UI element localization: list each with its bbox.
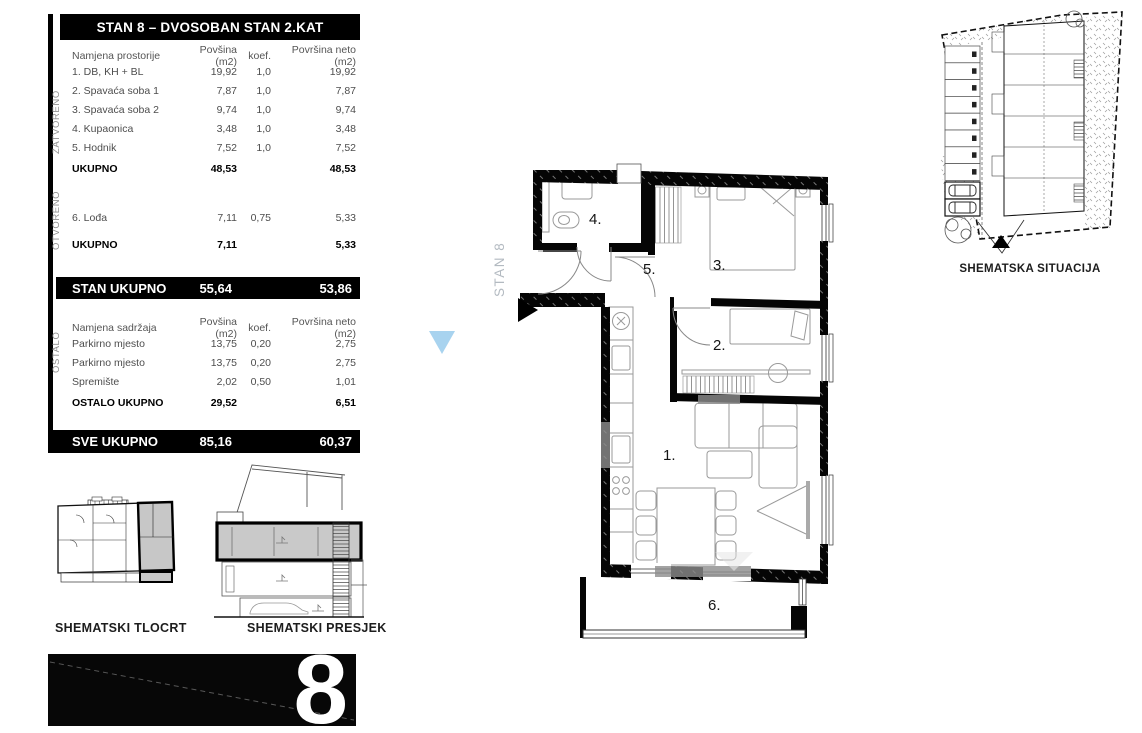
bedroom2-furniture <box>682 309 810 393</box>
pillow <box>717 187 745 200</box>
floor-plan: 4. 5. 3. 2. 1. 6. <box>505 160 850 660</box>
side-label-zatvoreno: ZATVORENO <box>51 75 62 170</box>
col-neto: Površina neto (m2) <box>271 44 356 68</box>
wardrobe <box>683 376 754 393</box>
wall-top-left <box>533 170 618 184</box>
parapet <box>217 512 243 523</box>
section-ostalo: Namjena sadržaja Povšina (m2) koef. Povr… <box>60 316 360 412</box>
blanket-fold <box>759 186 794 216</box>
wardrobe <box>655 187 681 243</box>
single-bed <box>730 309 810 344</box>
sofa-chaise <box>759 426 797 488</box>
loggia-wall-left <box>580 577 586 638</box>
toilet-bowl <box>559 216 570 225</box>
roof-lines <box>234 465 345 522</box>
parking-stalls <box>945 46 980 180</box>
stair-shaft <box>333 523 349 617</box>
window-living <box>819 475 833 545</box>
window-room3 <box>819 204 833 242</box>
col-koef: koef. <box>237 50 271 62</box>
toilet <box>553 212 579 228</box>
side-label-otvoreno: OTVORENO <box>51 200 62 250</box>
side-label-ostalo: OSTALO <box>51 318 62 386</box>
car-stalls <box>945 182 980 216</box>
table-row: Parkirno mjesto 13,75 0,20 2,75 <box>72 334 360 353</box>
bathroom-counter <box>542 174 549 232</box>
caption-tlocrt: SHEMATSKI TLOCRT <box>55 621 187 635</box>
first-floor <box>222 562 351 596</box>
table-row: 2. Spavaća soba 1 7,87 1,0 7,87 <box>72 81 360 100</box>
blue-triangle-marker <box>429 331 455 354</box>
table-row: 4. Kupaonica 3,48 1,0 3,48 <box>72 119 360 138</box>
building-section <box>212 455 367 620</box>
otvoreno-total-row: UKUPNO 7,11 5,33 <box>72 235 360 254</box>
room-label-4: 4. <box>589 211 602 228</box>
plan-sheet: STAN 8 – DVOSOBAN STAN 2.KAT ZATVORENO O… <box>0 0 1142 733</box>
bedroom3-furniture <box>655 184 810 270</box>
dining-table <box>657 488 715 565</box>
grand-total-bar: SVE UKUPNO 85,16 60,37 <box>48 430 360 453</box>
table-row: 5. Hodnik 7,52 1,0 7,52 <box>72 138 360 157</box>
col-name: Namjena prostorije <box>72 50 186 62</box>
section-zatvoreno: Namjena prostorije Povšina (m2) koef. Po… <box>60 44 360 178</box>
room-label-1: 1. <box>663 447 676 464</box>
site-plan <box>922 6 1132 268</box>
area-table: STAN 8 – DVOSOBAN STAN 2.KAT ZATVORENO O… <box>48 14 360 448</box>
tv-view-lines <box>757 486 806 534</box>
room2-door <box>673 308 710 345</box>
table-row: 1. DB, KH + BL 19,92 1,0 19,92 <box>72 62 360 81</box>
col-area: Povšina (m2) <box>186 44 237 68</box>
lamp <box>698 186 706 194</box>
stan-total-bar: STAN UKUPNO 55,64 53,86 <box>56 277 360 299</box>
kitchen-block <box>609 307 633 565</box>
window-room2 <box>819 334 833 382</box>
living-furniture <box>636 403 810 565</box>
room-label-2: 2. <box>713 337 726 354</box>
table-header-2: Namjena sadržaja Povšina (m2) koef. Povr… <box>72 316 360 332</box>
highlighted-unit <box>138 502 174 571</box>
shaft-box <box>617 164 641 183</box>
stool <box>769 364 788 383</box>
highlighted-balcony <box>140 572 172 582</box>
building-footprint <box>992 21 1084 216</box>
tv-board <box>806 481 810 539</box>
unit-number: 8 <box>293 654 348 724</box>
table-row: 3. Spavaća soba 2 9,74 1,0 9,74 <box>72 100 360 119</box>
table-row: Spremište 2,02 0,50 1,01 <box>72 372 360 391</box>
table-header: Namjena prostorije Povšina (m2) koef. Po… <box>72 44 360 60</box>
dining-chairs <box>636 491 736 560</box>
table-row: Parkirno mjesto 13,75 0,20 2,75 <box>72 353 360 372</box>
shelf <box>682 370 810 374</box>
wall-left <box>533 170 542 252</box>
sofa-cushions <box>729 403 763 448</box>
wall-closet <box>641 184 649 244</box>
room2-door-opening <box>674 295 711 311</box>
wall-room2-left <box>670 305 677 402</box>
entrance-door <box>538 251 581 294</box>
bathroom-door <box>577 247 611 281</box>
ostalo-total-row: OSTALO UKUPNO 29,52 6,51 <box>72 393 360 412</box>
caption-situacija: SHEMATSKA SITUACIJA <box>935 263 1125 275</box>
room-label-6: 6. <box>708 597 721 614</box>
room-label-3: 3. <box>713 257 726 274</box>
wall-entry-bottom <box>520 293 605 307</box>
table-row: 6. Lođa 7,11 0,75 5,33 <box>72 208 360 227</box>
schematic-floor-plan <box>48 493 188 593</box>
loggia-outline <box>583 579 806 638</box>
wall-hall-room3 <box>648 185 655 257</box>
table-title: STAN 8 – DVOSOBAN STAN 2.KAT <box>60 14 360 40</box>
zatvoreno-total-row: UKUPNO 48,53 48,53 <box>72 159 360 178</box>
caption-presjek: SHEMATSKI PRESJEK <box>247 621 387 635</box>
north-arrow <box>992 235 1010 248</box>
room-label-5: 5. <box>643 261 656 278</box>
pillow <box>791 311 808 340</box>
section-otvoreno: 6. Lođa 7,11 0,75 5,33 UKUPNO 7,11 5,33 <box>60 208 360 254</box>
coffee-table <box>707 451 752 478</box>
wall-bathroom-bottom-2 <box>609 243 649 252</box>
unit-number-banner: 8 <box>48 654 356 726</box>
entrance-opening <box>532 250 543 293</box>
